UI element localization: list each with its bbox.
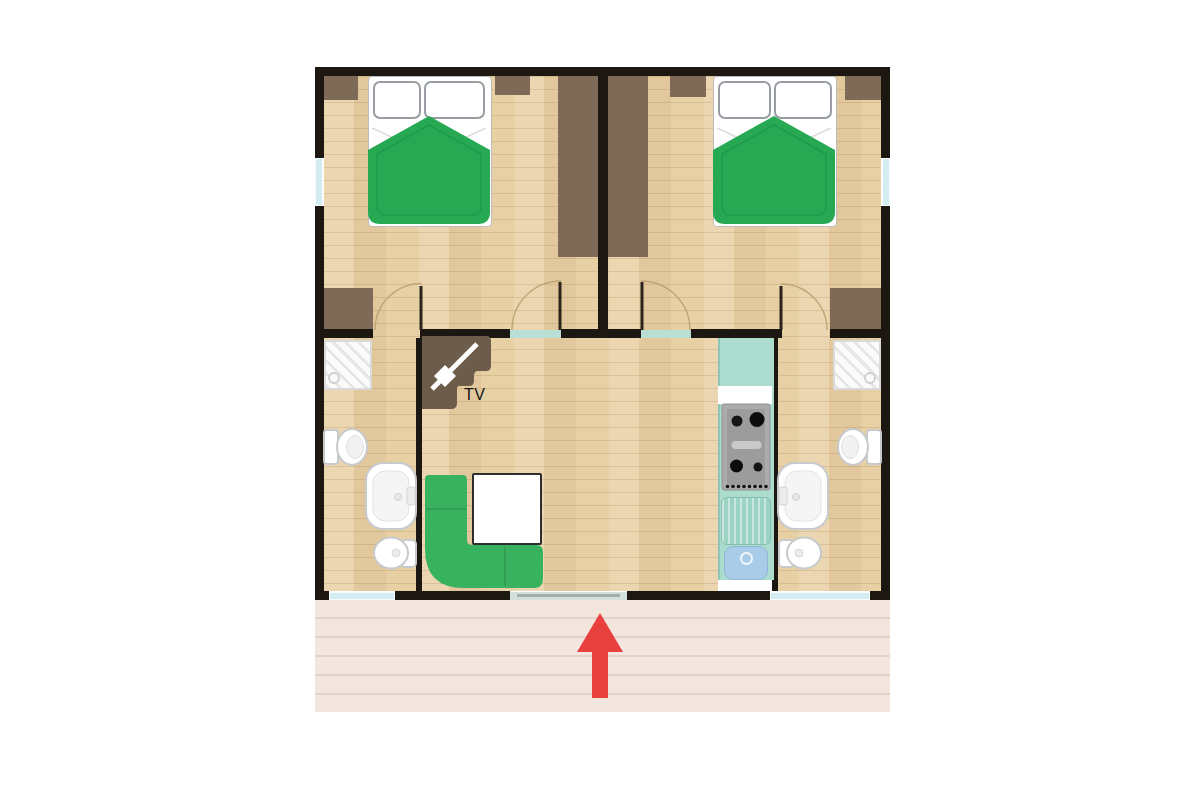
floorplan: TV bbox=[0, 0, 1200, 800]
bidet-icon bbox=[374, 538, 416, 569]
door-swing-arcs bbox=[375, 281, 827, 330]
entrance-arrow-icon bbox=[577, 613, 623, 698]
double-bed-icon bbox=[713, 116, 835, 224]
tv-icon bbox=[422, 336, 491, 409]
washbasin-icon bbox=[366, 463, 416, 529]
corner-sofa-icon bbox=[425, 475, 543, 588]
washbasin-icon bbox=[778, 463, 828, 529]
double-bed-icon bbox=[368, 116, 490, 224]
toilet-icon bbox=[838, 429, 881, 465]
bidet-icon bbox=[779, 538, 821, 569]
stove-icon bbox=[722, 404, 770, 490]
fixtures-overlay bbox=[0, 0, 1200, 800]
toilet-icon bbox=[324, 429, 367, 465]
